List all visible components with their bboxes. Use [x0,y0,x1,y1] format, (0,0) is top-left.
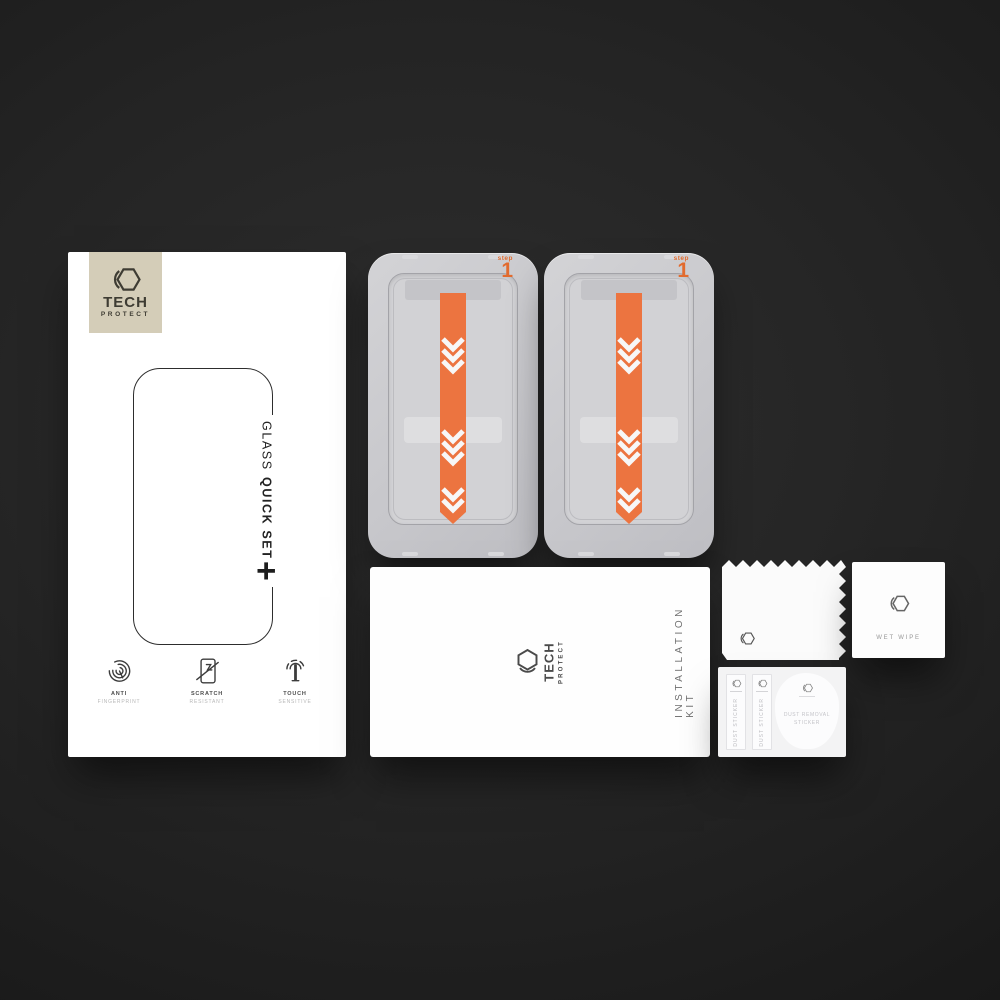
feature-subtitle: RESISTANT [190,699,225,705]
retail-box: TECH PROTECT GLASS QUICK SET + [68,252,346,757]
product-name-vertical: GLASS QUICK SET + [249,415,283,587]
tray-notch [578,255,594,259]
installation-kit-envelope: TECH PROTECT INSTALLATION KIT [370,567,710,757]
envelope-brand-logo: TECH PROTECT [516,640,565,684]
hexagon-logo-icon [731,679,742,688]
hexagon-logo-icon [757,679,768,688]
microfiber-cloth [722,560,846,660]
feature-title: SCRATCH [190,691,225,698]
feature-title: TOUCH [278,691,311,698]
phone-outline: GLASS QUICK SET + [133,368,273,645]
divider [730,691,742,692]
orange-pull-strip [616,293,642,526]
tray-notch [488,552,504,556]
tray-notch [402,552,418,556]
dust-sticker-strip: DUST STICKER [752,674,772,750]
product-name-glass: GLASS [260,421,273,471]
brand-name: TECH [543,642,556,681]
pad-label-line2: STICKER [784,719,830,727]
brand-name: TECH [103,295,148,310]
hexagon-logo-icon [801,683,814,693]
fingerprint-icon [106,656,133,686]
brand-subname: PROTECT [101,312,150,319]
divider [756,691,768,692]
feature-title: ANTI [98,691,141,698]
tray-notch [402,255,418,259]
hexagon-logo-icon [738,631,756,646]
installation-kit-label: INSTALLATION KIT [674,606,696,718]
feature-subtitle: SENSITIVE [278,699,311,705]
feature-anti-fingerprint: ANTI FINGERPRINT [87,656,151,705]
scratch-icon [194,656,221,686]
applicator-tray-1: step 1 [368,253,538,558]
feature-icons-row: ANTI FINGERPRINT SCRATCH RESISTANT [68,656,346,705]
touch-icon [282,656,309,686]
step-number: 1 [674,262,689,280]
dust-removal-pad: DUST REMOVAL STICKER [775,673,839,749]
product-name-quick-set: QUICK SET [260,477,273,559]
plus-mark: + [249,561,283,581]
orange-pull-strip [440,293,466,526]
step-badge: step 1 [498,256,513,279]
dust-sticker-strip: DUST STICKER [726,674,746,750]
pad-label-line1: DUST REMOVAL [784,711,830,719]
strip-label: DUST STICKER [733,698,739,747]
brand-logo-badge: TECH PROTECT [89,252,162,333]
product-photo-scene: TECH PROTECT GLASS QUICK SET + [0,0,1000,1000]
wet-wipe-sachet: WET WIPE [852,562,945,658]
step-number: 1 [498,262,513,280]
tray-notch [664,552,680,556]
wet-wipe-label: WET WIPE [876,635,921,641]
feature-scratch-resistant: SCRATCH RESISTANT [175,656,239,705]
step-badge: step 1 [674,256,689,279]
hexagon-logo-icon [516,647,540,677]
feature-subtitle: FINGERPRINT [98,699,141,705]
sticker-sheet: DUST STICKER DUST STICKER DUST REMOVAL S… [718,667,846,757]
feature-touch-sensitive: TOUCH SENSITIVE [263,656,327,705]
brand-subname: PROTECT [559,640,565,684]
applicator-tray-2: step 1 [544,253,714,558]
hexagon-logo-icon [109,266,143,293]
tray-notch [578,552,594,556]
strip-label: DUST STICKER [759,698,765,747]
divider [799,696,815,697]
hexagon-logo-icon [887,594,911,613]
